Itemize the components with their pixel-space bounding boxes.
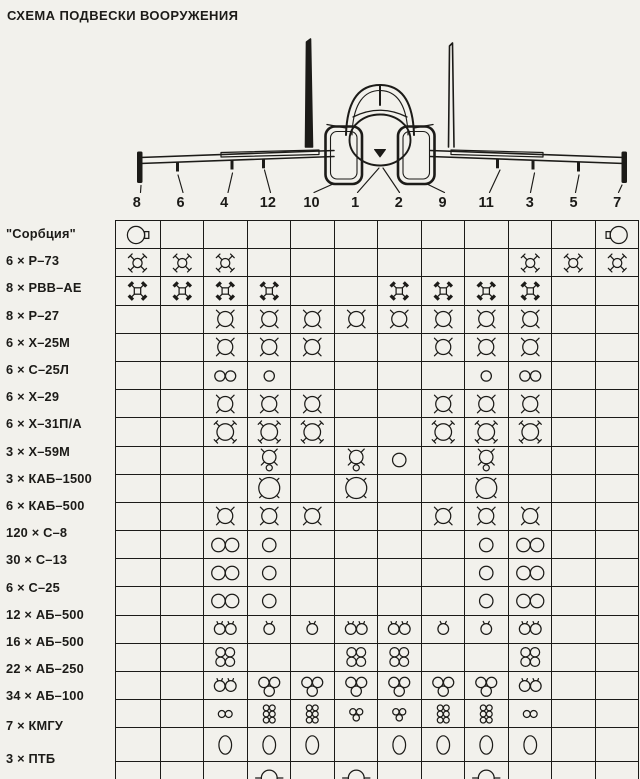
cell-empty (334, 362, 378, 389)
table-row (116, 361, 638, 389)
cell-empty (595, 559, 639, 586)
cell-missile-x-fins (464, 503, 508, 530)
cell-empty (508, 475, 552, 502)
cell-missile-x-fins (334, 306, 378, 333)
cell-empty (595, 277, 639, 304)
cell-empty (160, 559, 204, 586)
row-label: 3 × КАБ–1500 (6, 465, 113, 492)
cell-empty (421, 221, 465, 248)
bomb-triple-cluster-icon (465, 673, 508, 699)
cell-empty (377, 362, 421, 389)
hardpoint-number: 4 (202, 194, 246, 212)
right-wingtip-rail (622, 152, 628, 184)
cell-missile-x-fins (247, 390, 291, 417)
table-row (116, 727, 638, 761)
r73-missile-x-fins-icon (161, 250, 204, 276)
hardpoint-number: 8 (115, 194, 159, 212)
cell-empty (464, 221, 508, 248)
cell-empty (290, 644, 334, 671)
small-bomb-six-cluster-icon (422, 701, 465, 727)
cell-x59-missile-with-pod (464, 447, 508, 474)
cell-rvv-ae-missile-lattice-fins (464, 277, 508, 304)
cell-empty (160, 447, 204, 474)
cell-empty (551, 531, 595, 558)
cell-rocket-pod (247, 587, 291, 614)
bomb-triple-cluster-icon (378, 673, 421, 699)
cell-empty (290, 587, 334, 614)
rocket-pod-pair-icon (204, 532, 247, 558)
cell-drop-tank (247, 762, 291, 779)
cell-empty (116, 503, 160, 530)
cell-kmgu-dispenser (203, 728, 247, 761)
row-label: 16 × АБ–500 (6, 628, 113, 655)
table-row (116, 699, 638, 727)
cell-missile-x-fins (421, 503, 465, 530)
cell-empty (595, 700, 639, 727)
missile-x-fins-icon (422, 306, 465, 332)
cell-empty (334, 221, 378, 248)
cell-rocket-pod-pair (508, 531, 552, 558)
rocket-pod-pair-icon (509, 532, 552, 558)
table-row (116, 530, 638, 558)
cell-empty (160, 728, 204, 761)
small-bomb-pair-icon (204, 701, 247, 727)
cell-r73-missile-x-fins (203, 249, 247, 276)
hardpoint-number: 2 (377, 194, 421, 212)
radome (350, 115, 411, 166)
cell-empty (116, 447, 160, 474)
row-label: 12 × АБ–500 (6, 601, 113, 628)
table-row (116, 761, 638, 779)
cell-empty (116, 390, 160, 417)
cell-empty (551, 700, 595, 727)
cell-rocket-pod-pair (203, 587, 247, 614)
page: СХЕМА ПОДВЕСКИ ВООРУЖЕНИЯ (0, 0, 640, 779)
cell-empty (551, 475, 595, 502)
cell-empty (551, 672, 595, 699)
cell-empty (334, 334, 378, 361)
table-row (116, 446, 638, 474)
cell-empty (203, 762, 247, 779)
bomb-pair-icon (509, 673, 552, 699)
cell-sorbtsiya-ecm-pod-tab-left (595, 221, 639, 248)
rocket-pod-icon (248, 532, 291, 558)
rocket-pod-pair-icon (204, 588, 247, 614)
missile-x-fins-icon (465, 334, 508, 360)
cell-empty (464, 249, 508, 276)
bomb-icon (248, 616, 291, 642)
small-bomb-six-cluster-icon (291, 701, 334, 727)
cell-empty (334, 277, 378, 304)
large-missile-x-fins-icon (422, 419, 465, 445)
hardpoint-number: 12 (246, 194, 290, 212)
drop-tank-icon (248, 765, 291, 779)
drop-tank-icon (465, 765, 508, 779)
cell-empty (290, 277, 334, 304)
cell-bomb-pair (508, 672, 552, 699)
cell-empty (551, 644, 595, 671)
cell-empty (551, 503, 595, 530)
missile-x-fins-icon (204, 391, 247, 417)
cell-r73-missile-x-fins (595, 249, 639, 276)
cell-empty (595, 503, 639, 530)
bomb-icon (465, 616, 508, 642)
cell-empty (116, 728, 160, 761)
table-row (116, 417, 638, 445)
bomb-icon (291, 616, 334, 642)
cell-missile-x-fins (290, 334, 334, 361)
cell-bomb-quad-cluster (334, 644, 378, 671)
sorbtsiya-ecm-pod-tab-left-icon (596, 222, 639, 248)
cell-missile-x-fins (247, 334, 291, 361)
cell-missile-x-fins (290, 503, 334, 530)
row-label: 30 × С–13 (6, 546, 113, 573)
cell-large-missile-x-fins (290, 418, 334, 445)
cell-empty (595, 644, 639, 671)
cell-small-rocket-pod-pair (508, 362, 552, 389)
missile-x-fins-icon (204, 334, 247, 360)
r73-missile-x-fins-icon (509, 250, 552, 276)
hardpoint-number: 3 (508, 194, 552, 212)
bomb-triple-cluster-icon (248, 673, 291, 699)
bomb-triple-cluster-icon (291, 673, 334, 699)
cell-large-missile-x-fins (464, 418, 508, 445)
cell-bomb-triple-cluster (290, 672, 334, 699)
large-missile-x-fins-icon (291, 419, 334, 445)
cell-empty (421, 531, 465, 558)
cell-rocket-pod (464, 531, 508, 558)
cell-r73-missile-x-fins (116, 249, 160, 276)
hardpoint-number: 5 (552, 194, 596, 212)
missile-x-fins-icon (204, 306, 247, 332)
cell-small-rocket-pod (464, 362, 508, 389)
missile-x-fins-icon (422, 391, 465, 417)
cell-empty (595, 306, 639, 333)
hardpoint-numbers: 864121012911357 (115, 194, 639, 212)
cell-large-missile-x-fins (421, 418, 465, 445)
cell-empty (551, 616, 595, 643)
rvv-ae-missile-lattice-fins-icon (378, 278, 421, 304)
row-labels: "Сорбция"6 × Р–738 × РВВ–АЕ8 × Р–276 × Х… (6, 220, 113, 774)
cell-empty (160, 762, 204, 779)
cell-empty (290, 475, 334, 502)
cell-bomb-pair (203, 672, 247, 699)
cell-empty (160, 672, 204, 699)
row-label: 8 × Р–27 (6, 302, 113, 329)
cell-empty (551, 277, 595, 304)
cell-bomb (247, 616, 291, 643)
cell-x59-missile-with-pod (334, 447, 378, 474)
row-label: 8 × РВВ–АЕ (6, 274, 113, 301)
row-label: 6 × КАБ–500 (6, 492, 113, 519)
kmgu-dispenser-icon (465, 732, 508, 758)
kmgu-dispenser-icon (291, 732, 334, 758)
cell-empty (595, 616, 639, 643)
cell-small-bomb-six-cluster (464, 700, 508, 727)
cell-rocket-pod-pair (203, 559, 247, 586)
cell-bomb-triple-cluster (247, 672, 291, 699)
missile-x-fins-icon (335, 306, 378, 332)
large-missile-x-fins-icon (465, 419, 508, 445)
missile-x-fins-icon (291, 503, 334, 529)
left-tail-fin (306, 39, 313, 147)
cell-rvv-ae-missile-lattice-fins (421, 277, 465, 304)
missile-x-fins-icon (509, 391, 552, 417)
cell-rvv-ae-missile-lattice-fins (160, 277, 204, 304)
missile-x-fins-icon (465, 391, 508, 417)
cell-empty (421, 362, 465, 389)
cell-missile-x-fins (508, 390, 552, 417)
cell-rocket-pod-pair (203, 531, 247, 558)
cell-empty (334, 418, 378, 445)
large-missile-x-fins-icon (248, 419, 291, 445)
cell-empty (116, 559, 160, 586)
cell-small-bomb-triple-cluster (377, 700, 421, 727)
cell-empty (334, 559, 378, 586)
rocket-pod-icon (248, 560, 291, 586)
hardpoint-number: 7 (595, 194, 639, 212)
cell-small-bomb-triple-cluster (334, 700, 378, 727)
rvv-ae-missile-lattice-fins-icon (116, 278, 159, 304)
cell-bomb-pair (334, 616, 378, 643)
cell-kmgu-dispenser (464, 728, 508, 761)
bomb-pair-icon (204, 673, 247, 699)
cell-empty (595, 728, 639, 761)
row-label: 120 × С–8 (6, 519, 113, 546)
loadout-grid (115, 220, 639, 779)
cell-empty (116, 700, 160, 727)
kab1500-bomb-icon (335, 475, 378, 501)
hardpoint-leader-lines (141, 168, 623, 193)
cell-empty (377, 531, 421, 558)
cell-x59-missile-with-pod (247, 447, 291, 474)
cell-bomb-pair (203, 616, 247, 643)
cell-empty (160, 616, 204, 643)
cell-empty (421, 447, 465, 474)
cell-missile-x-fins (464, 390, 508, 417)
rvv-ae-missile-lattice-fins-icon (248, 278, 291, 304)
rocket-pod-icon (465, 532, 508, 558)
cell-empty (160, 390, 204, 417)
cell-missile-x-fins (247, 306, 291, 333)
bomb-pair-icon (378, 616, 421, 642)
small-bomb-triple-cluster-icon (378, 701, 421, 727)
cell-empty (551, 362, 595, 389)
r73-missile-x-fins-icon (552, 250, 595, 276)
cell-kmgu-dispenser (247, 728, 291, 761)
cell-empty (290, 559, 334, 586)
bomb-triple-cluster-icon (422, 673, 465, 699)
cell-empty (595, 334, 639, 361)
hardpoint-number: 11 (464, 194, 508, 212)
cell-empty (290, 447, 334, 474)
x59-missile-with-pod-icon (248, 447, 291, 473)
table-row (116, 221, 638, 248)
cell-rvv-ae-missile-lattice-fins (377, 277, 421, 304)
cell-r73-missile-x-fins (160, 249, 204, 276)
cell-empty (290, 221, 334, 248)
cell-empty (595, 475, 639, 502)
cell-empty (116, 644, 160, 671)
cell-empty (377, 762, 421, 779)
small-rocket-pod-pair-icon (509, 363, 552, 389)
row-label: 22 × АБ–250 (6, 655, 113, 682)
row-label: 3 × ПТБ (6, 742, 113, 774)
cell-empty (464, 644, 508, 671)
cell-empty (595, 587, 639, 614)
cell-empty (160, 531, 204, 558)
cell-empty (377, 587, 421, 614)
cell-empty (290, 762, 334, 779)
cell-empty (334, 503, 378, 530)
left-wingtip-rail (137, 152, 143, 184)
missile-x-fins-icon (509, 306, 552, 332)
bomb-quad-cluster-icon (335, 644, 378, 670)
cell-rvv-ae-missile-lattice-fins (508, 277, 552, 304)
rocket-pod-icon (465, 588, 508, 614)
cell-empty (160, 700, 204, 727)
cell-kmgu-dispenser (377, 728, 421, 761)
cell-empty (116, 418, 160, 445)
cell-empty (160, 362, 204, 389)
cell-empty (421, 249, 465, 276)
missile-x-fins-icon (465, 503, 508, 529)
rocket-pod-pair-icon (509, 560, 552, 586)
cell-rocket-pod-pair (508, 587, 552, 614)
cell-empty (551, 559, 595, 586)
cell-empty (595, 418, 639, 445)
row-label: "Сорбция" (6, 220, 113, 247)
cell-empty (334, 390, 378, 417)
small-rocket-pod-icon (248, 363, 291, 389)
cell-empty (595, 531, 639, 558)
missile-x-fins-icon (509, 334, 552, 360)
row-label: 6 × Р–73 (6, 247, 113, 274)
rvv-ae-missile-lattice-fins-icon (422, 278, 465, 304)
cell-empty (116, 672, 160, 699)
rocket-pod-pair-icon (204, 560, 247, 586)
small-bomb-six-cluster-icon (465, 701, 508, 727)
aircraft-front-view-icon (0, 0, 640, 193)
cell-bomb (464, 616, 508, 643)
table-row (116, 276, 638, 304)
table-row (116, 643, 638, 671)
hardpoint-number: 9 (421, 194, 465, 212)
row-label: 7 × КМГУ (6, 709, 113, 742)
cell-small-rocket-pod-pair (203, 362, 247, 389)
table-row (116, 502, 638, 530)
bomb-icon (422, 616, 465, 642)
rvv-ae-missile-lattice-fins-icon (465, 278, 508, 304)
right-tail-fin (449, 43, 455, 147)
cell-missile-x-fins (421, 334, 465, 361)
cell-bomb-quad-cluster (508, 644, 552, 671)
drop-tank-icon (335, 765, 378, 779)
cell-large-missile-x-fins (203, 418, 247, 445)
cell-empty (595, 362, 639, 389)
row-label: 34 × АБ–100 (6, 682, 113, 709)
small-rocket-pod-pair-icon (204, 363, 247, 389)
bomb-quad-cluster-icon (378, 644, 421, 670)
cell-empty (160, 306, 204, 333)
rocket-pod-icon (248, 588, 291, 614)
cell-small-bomb-six-cluster (247, 700, 291, 727)
missile-x-fins-icon (248, 503, 291, 529)
small-bomb-triple-cluster-icon (335, 701, 378, 727)
cell-bomb (290, 616, 334, 643)
missile-x-fins-icon (291, 391, 334, 417)
cell-drop-tank (464, 762, 508, 779)
missile-x-fins-icon (291, 306, 334, 332)
bomb-triple-cluster-icon (335, 673, 378, 699)
row-label: 6 × С–25Л (6, 356, 113, 383)
cell-kab1500-bomb (334, 475, 378, 502)
cell-small-bomb-six-cluster (290, 700, 334, 727)
cell-bomb-triple-cluster (421, 672, 465, 699)
cell-empty (160, 475, 204, 502)
table-row (116, 305, 638, 333)
cell-missile-x-fins (421, 390, 465, 417)
cell-empty (160, 334, 204, 361)
missile-x-fins-icon (204, 503, 247, 529)
cell-small-bomb-six-cluster (421, 700, 465, 727)
cell-empty (160, 221, 204, 248)
table-row (116, 586, 638, 614)
cell-empty (551, 762, 595, 779)
kmgu-dispenser-icon (422, 732, 465, 758)
cell-bomb-triple-cluster (464, 672, 508, 699)
small-bomb-six-cluster-icon (248, 701, 291, 727)
cell-bomb (421, 616, 465, 643)
rvv-ae-missile-lattice-fins-icon (204, 278, 247, 304)
cell-empty (116, 362, 160, 389)
cell-missile-x-fins (508, 503, 552, 530)
kmgu-dispenser-icon (509, 732, 552, 758)
cell-empty (551, 306, 595, 333)
cell-empty (247, 221, 291, 248)
cell-missile-x-fins (247, 503, 291, 530)
cell-empty (377, 334, 421, 361)
cell-empty (508, 762, 552, 779)
cell-missile-x-fins (290, 306, 334, 333)
small-bomb-pair-icon (509, 701, 552, 727)
rocket-pod-icon (465, 560, 508, 586)
cell-rocket-pod (247, 531, 291, 558)
cell-empty (116, 334, 160, 361)
row-label: 6 × Х–31П/А (6, 410, 113, 437)
kmgu-dispenser-icon (378, 732, 421, 758)
cell-missile-x-fins (203, 306, 247, 333)
cell-rocket-pod-pair (508, 559, 552, 586)
hardpoint-number: 1 (333, 194, 377, 212)
table-row (116, 333, 638, 361)
cell-missile-x-fins (290, 390, 334, 417)
row-label: 6 × Х–29 (6, 383, 113, 410)
cell-missile-x-fins (421, 306, 465, 333)
missile-x-fins-icon (291, 334, 334, 360)
cell-empty (508, 447, 552, 474)
cell-empty (595, 672, 639, 699)
bomb-pair-icon (509, 616, 552, 642)
cell-missile-x-fins (203, 503, 247, 530)
bomb-quad-cluster-icon (204, 644, 247, 670)
kmgu-dispenser-icon (248, 732, 291, 758)
hardpoint-number: 6 (159, 194, 203, 212)
cell-r73-missile-x-fins (508, 249, 552, 276)
cell-empty (247, 249, 291, 276)
cell-kmgu-dispenser (508, 728, 552, 761)
cell-empty (203, 475, 247, 502)
